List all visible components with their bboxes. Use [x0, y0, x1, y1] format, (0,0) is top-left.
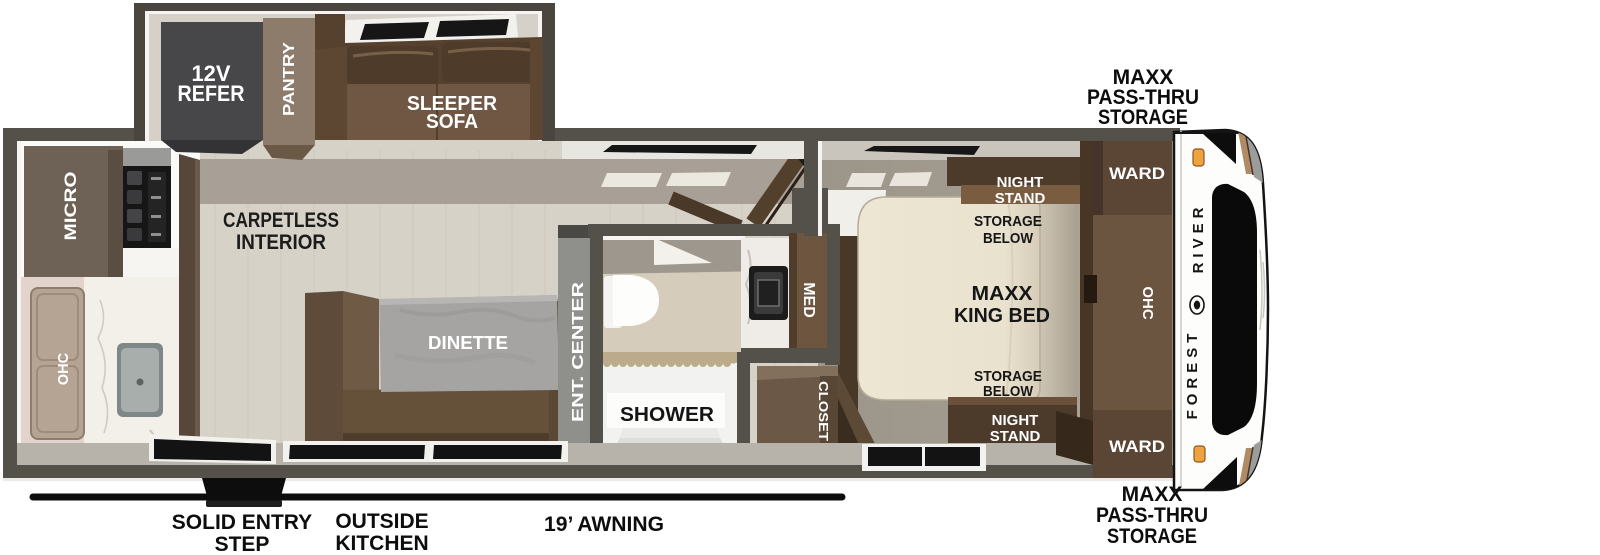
- svg-text:SOFA: SOFA: [426, 111, 478, 133]
- svg-text:FOREST: FOREST: [1184, 329, 1201, 420]
- svg-text:WARD: WARD: [1109, 437, 1165, 456]
- svg-text:STORAGE: STORAGE: [1098, 106, 1188, 129]
- svg-text:WARD: WARD: [1109, 164, 1165, 183]
- svg-text:STEP: STEP: [215, 533, 270, 555]
- svg-text:OHC: OHC: [56, 352, 72, 385]
- svg-text:KITCHEN: KITCHEN: [335, 532, 428, 555]
- svg-text:STAND: STAND: [990, 428, 1041, 445]
- svg-text:KING BED: KING BED: [954, 305, 1050, 327]
- svg-text:CARPETLESS: CARPETLESS: [223, 209, 339, 232]
- svg-text:MICRO: MICRO: [62, 171, 80, 240]
- svg-text:PASS-THRU: PASS-THRU: [1096, 504, 1208, 527]
- svg-text:STAND: STAND: [995, 190, 1046, 207]
- svg-text:STORAGE: STORAGE: [974, 213, 1042, 230]
- svg-text:OUTSIDE: OUTSIDE: [335, 510, 428, 533]
- svg-text:MED: MED: [800, 282, 817, 318]
- svg-text:SOLID ENTRY: SOLID ENTRY: [172, 511, 312, 534]
- svg-text:STORAGE: STORAGE: [1107, 525, 1197, 548]
- svg-text:RIVER: RIVER: [1190, 203, 1207, 274]
- svg-text:CLOSET: CLOSET: [816, 381, 831, 441]
- svg-text:MAXX: MAXX: [972, 283, 1034, 305]
- svg-text:REFER: REFER: [178, 81, 245, 106]
- svg-text:OHC: OHC: [1139, 286, 1156, 320]
- svg-text:NIGHT: NIGHT: [992, 412, 1039, 429]
- svg-text:INTERIOR: INTERIOR: [236, 231, 326, 254]
- svg-text:ENT. CENTER: ENT. CENTER: [570, 281, 587, 422]
- svg-text:MAXX: MAXX: [1122, 483, 1183, 506]
- svg-text:DINETTE: DINETTE: [428, 333, 508, 353]
- svg-text:BELOW: BELOW: [983, 230, 1034, 247]
- svg-text:19’ AWNING: 19’ AWNING: [544, 513, 664, 536]
- svg-text:NIGHT: NIGHT: [997, 174, 1044, 191]
- svg-text:SHOWER: SHOWER: [620, 404, 715, 426]
- svg-text:PANTRY: PANTRY: [281, 41, 298, 116]
